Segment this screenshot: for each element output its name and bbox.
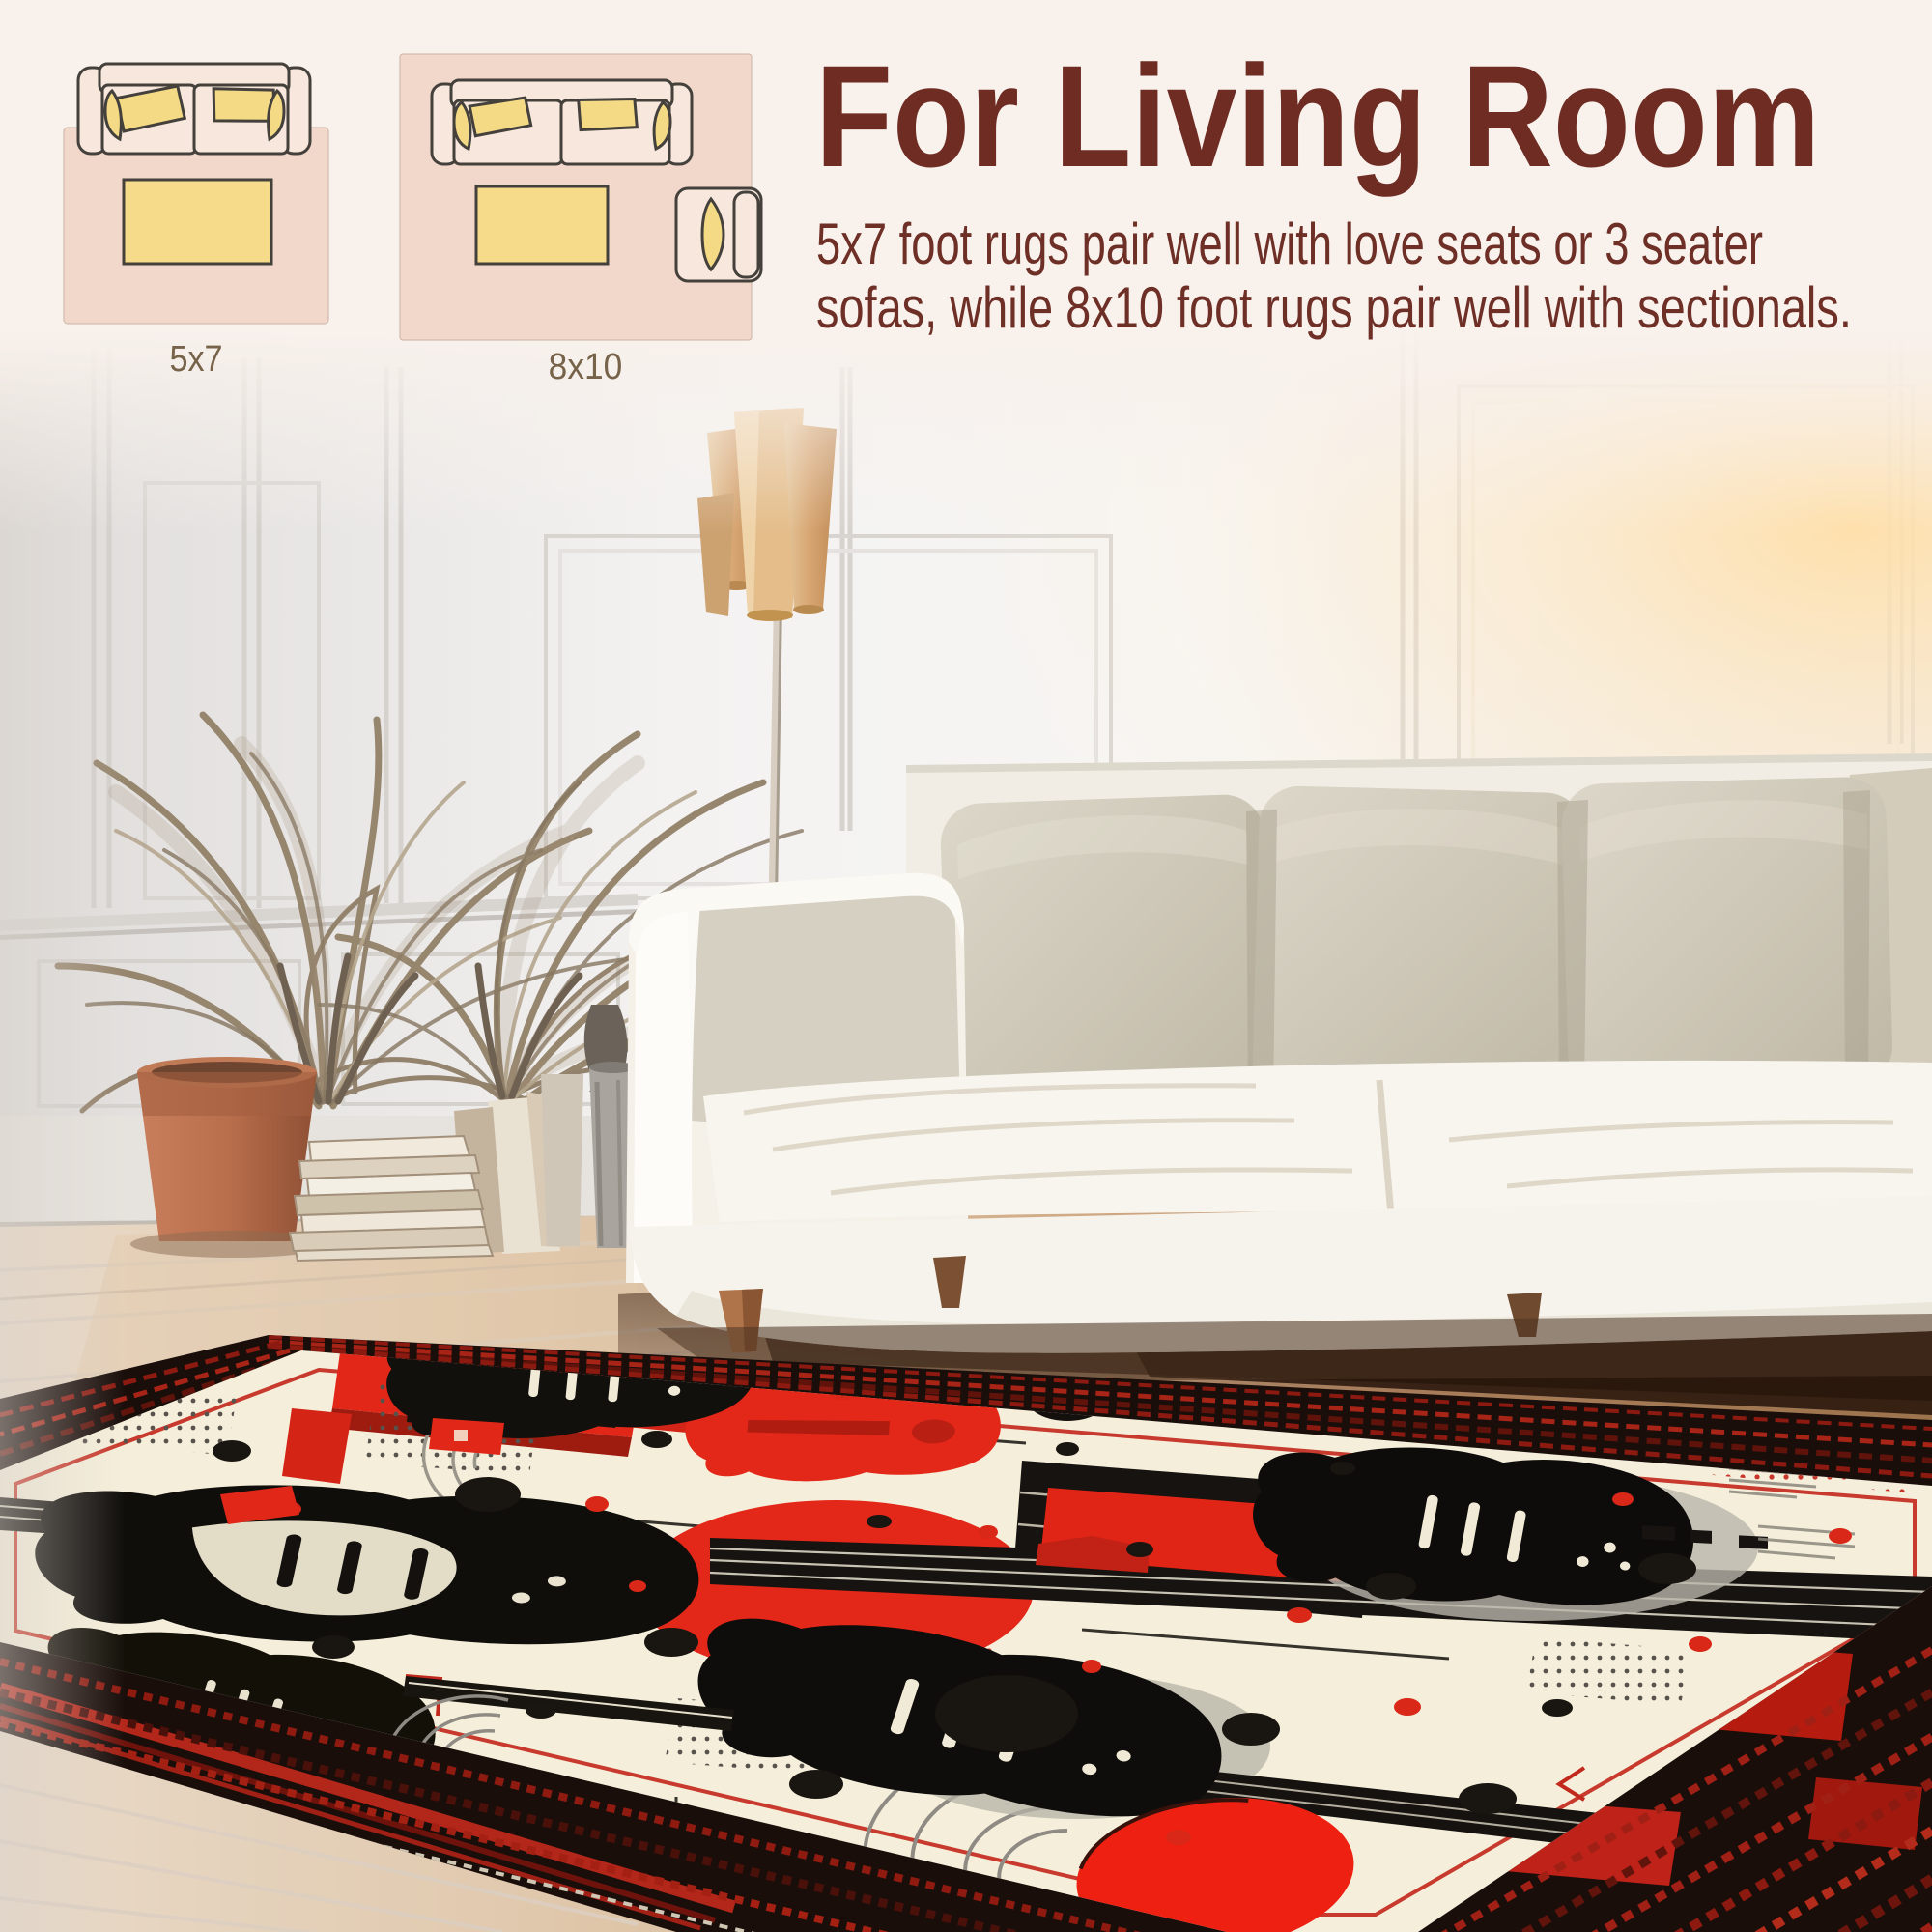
svg-text:8x10: 8x10 [549, 346, 623, 386]
svg-text:5x7: 5x7 [169, 337, 222, 379]
